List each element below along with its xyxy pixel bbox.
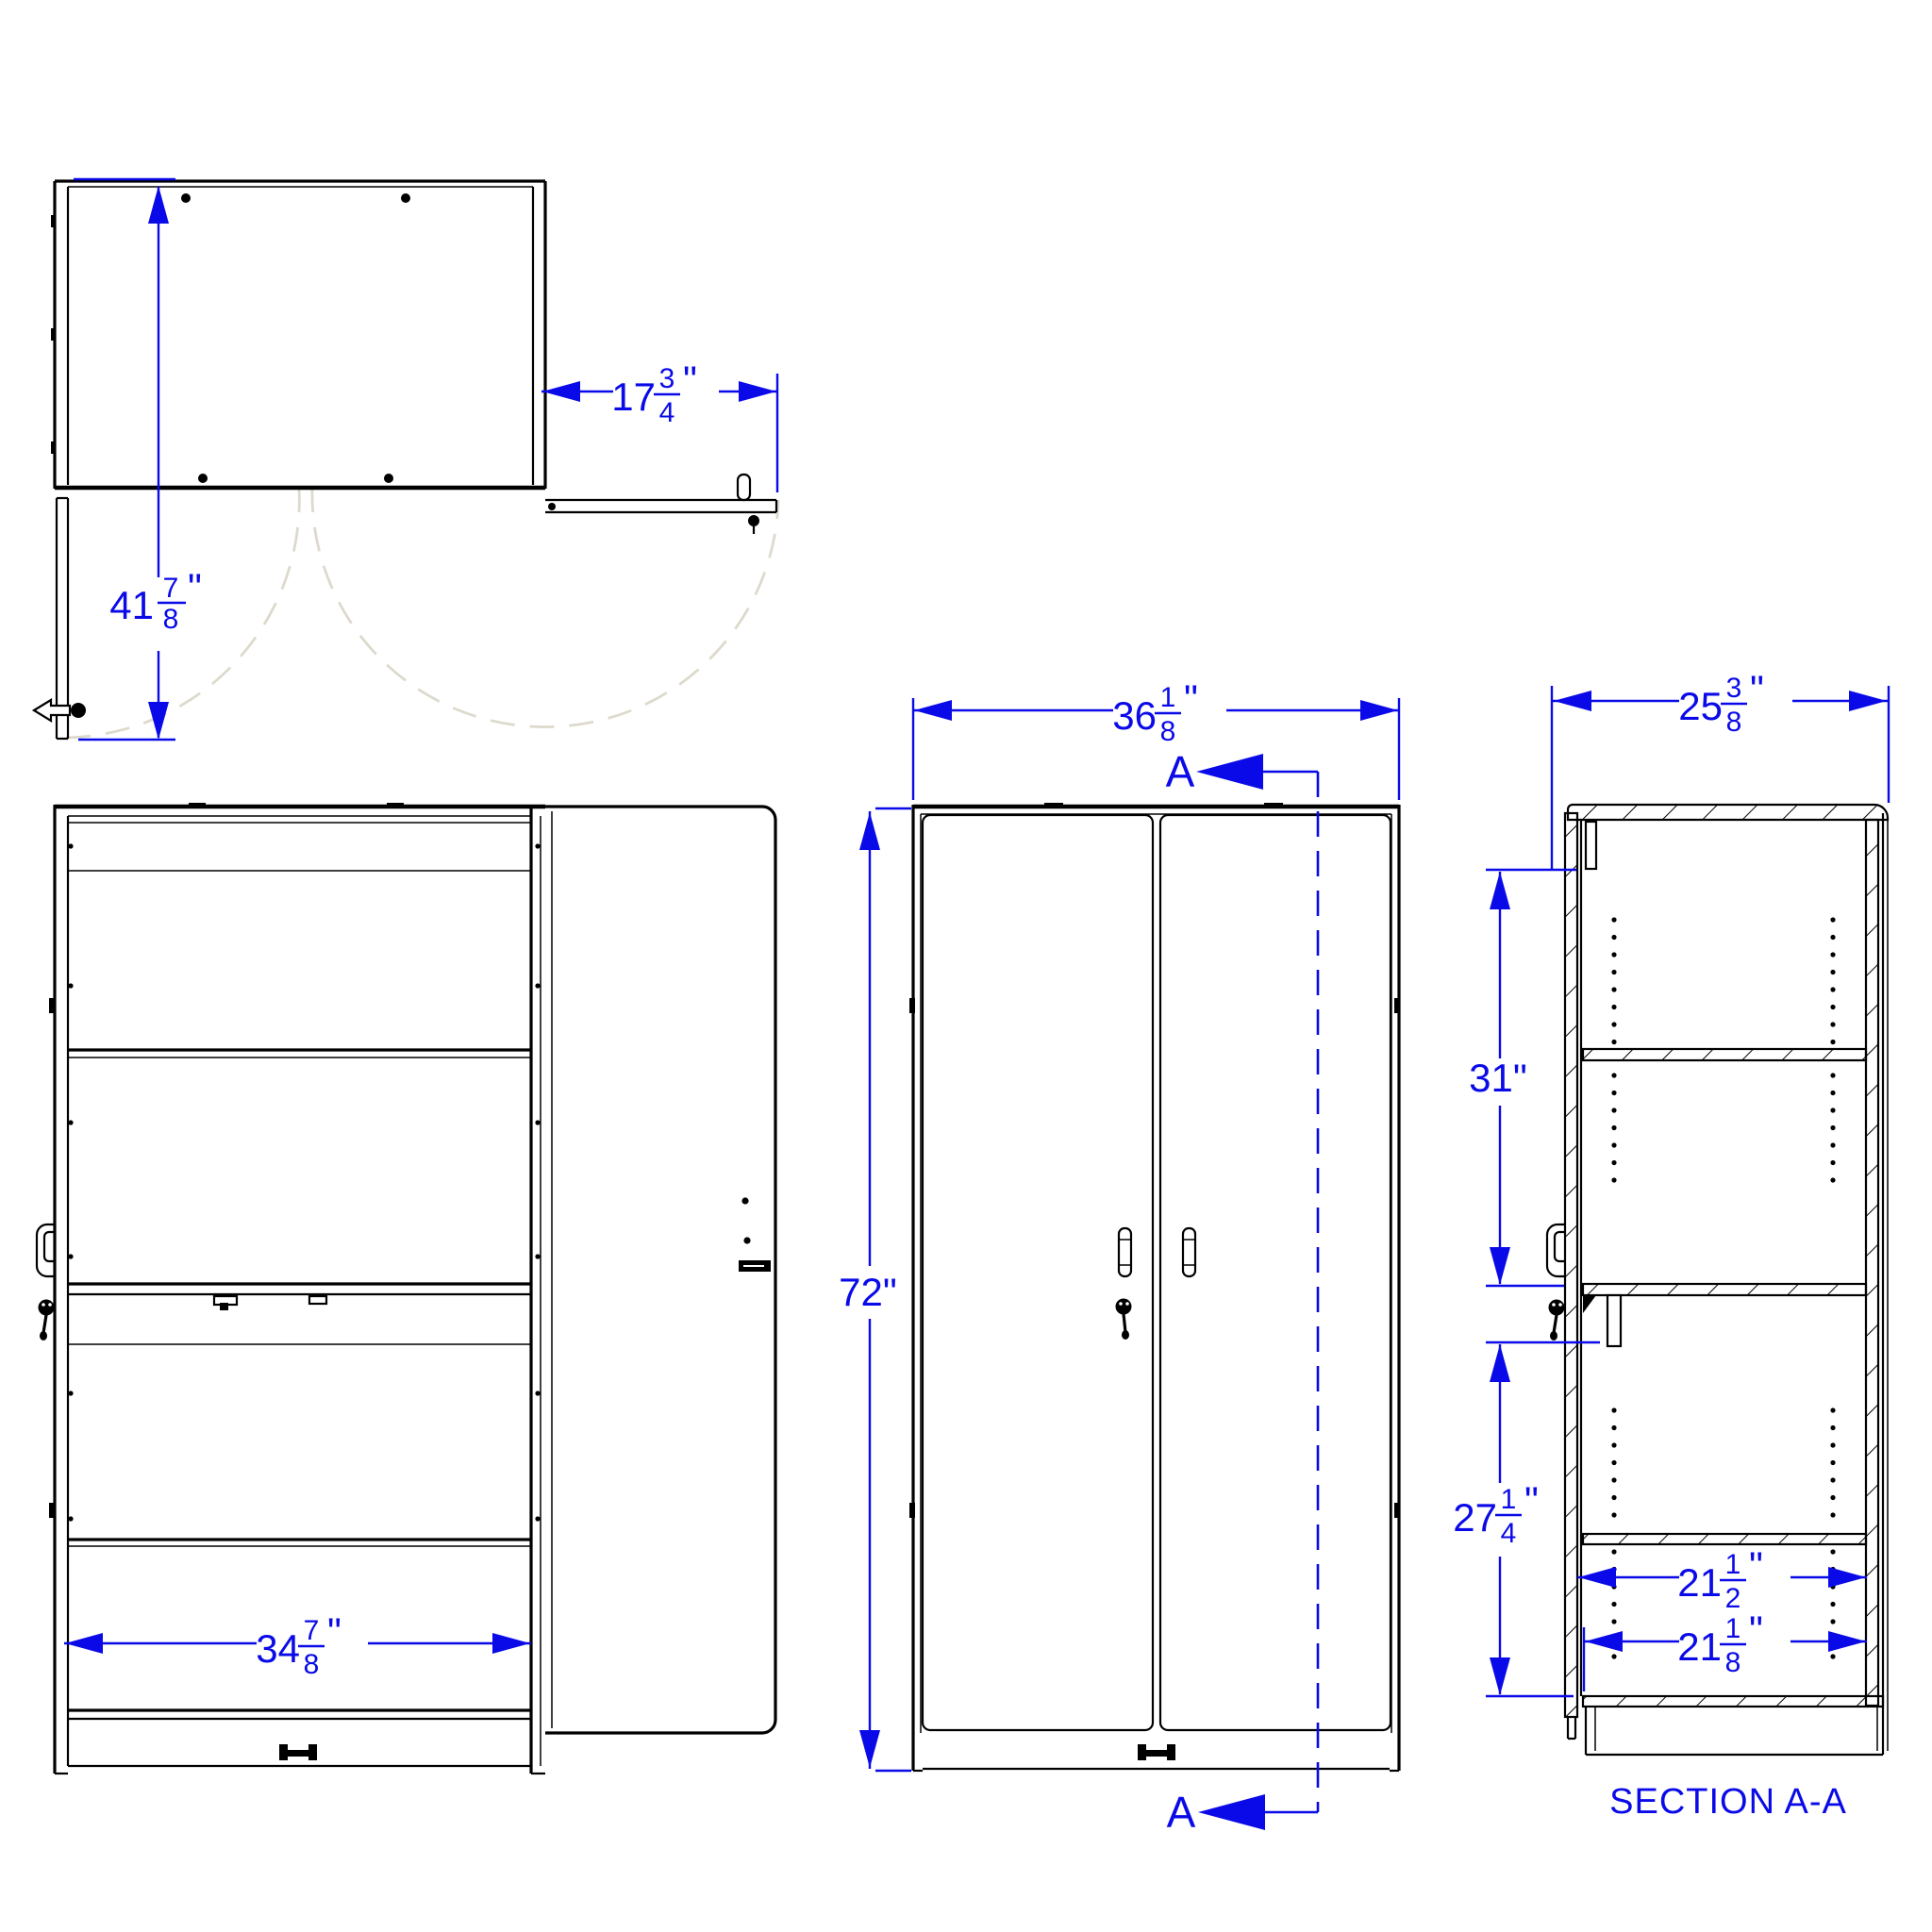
shelf-pin-holes xyxy=(68,843,540,1521)
svg-text:": " xyxy=(188,565,202,609)
base-latch-icon xyxy=(279,1744,317,1760)
dim-label: 31" xyxy=(1469,1056,1527,1100)
dim-overall-depth: 25 3 8 " xyxy=(1552,667,1889,869)
door-section xyxy=(1565,813,1577,1717)
svg-text:8: 8 xyxy=(163,604,179,635)
dim-interior-width: 34 7 8 " xyxy=(64,1609,531,1680)
dim-door-width: 17 3 4 " xyxy=(541,358,777,492)
fastener-dot xyxy=(401,193,410,203)
dim-overall-width: 36 1 8 " xyxy=(913,676,1399,800)
door-handle-icon xyxy=(37,1224,55,1276)
dim-label: 21 xyxy=(1677,1560,1722,1605)
dim-label: 72" xyxy=(839,1270,897,1314)
svg-text:": " xyxy=(1750,667,1764,711)
svg-text:3: 3 xyxy=(1726,673,1742,704)
section-marker-top: A xyxy=(1166,747,1195,796)
svg-text:4: 4 xyxy=(659,397,675,428)
door-pull-icon xyxy=(71,703,86,718)
svg-text:7: 7 xyxy=(304,1615,320,1646)
plan-right-door-open xyxy=(545,475,776,534)
section-marker-bottom: A xyxy=(1167,1788,1196,1837)
svg-text:": " xyxy=(1524,1478,1539,1523)
dim-lower-shelf-depth: 21 1 8 " xyxy=(1584,1607,1867,1691)
lock-and-key-icon xyxy=(1549,1300,1565,1341)
door-swing-arrow-icon xyxy=(34,700,70,721)
svg-text:": " xyxy=(1749,1543,1763,1588)
dim-label: 34 xyxy=(256,1626,300,1671)
right-door-handle-icon xyxy=(1183,1228,1195,1276)
section-arrow-icon xyxy=(1196,754,1263,790)
back-wall-section xyxy=(1866,820,1878,1706)
left-door-handle-icon xyxy=(1119,1228,1131,1276)
drawing-canvas: 41 7 8 " 17 3 4 " xyxy=(0,0,1932,1932)
open-door-panel xyxy=(545,807,775,1733)
shelf-latch-icon xyxy=(309,1296,326,1304)
svg-text:": " xyxy=(1749,1607,1763,1652)
door-handle-icon xyxy=(1547,1224,1565,1276)
section-arrow-icon xyxy=(1198,1794,1265,1830)
fixed-middle-shelf xyxy=(1583,1284,1866,1295)
adjustable-shelf xyxy=(1583,1049,1866,1060)
plan-view: 41 7 8 " 17 3 4 " xyxy=(34,179,778,740)
lock-and-key-icon xyxy=(1116,1299,1132,1341)
dim-plan-height: 41 7 8 " xyxy=(74,179,202,740)
fastener-dot xyxy=(198,474,208,483)
bottom-deck xyxy=(1583,1696,1883,1707)
door-lock-icon xyxy=(748,515,759,526)
svg-text:": " xyxy=(683,358,697,402)
lock-and-key-icon xyxy=(39,1300,55,1341)
dim-label: 21 xyxy=(1677,1624,1722,1669)
svg-text:8: 8 xyxy=(1726,707,1742,738)
svg-text:1: 1 xyxy=(1725,1613,1741,1644)
cad-drawing-sheet: 41 7 8 " 17 3 4 " xyxy=(0,0,1932,1932)
svg-text:": " xyxy=(1184,676,1198,721)
section-view: 25 3 8 " 31" 27 1 4 " 21 1 2 xyxy=(1453,667,1889,1822)
svg-text:1: 1 xyxy=(1725,1549,1741,1580)
front-open-view: 34 7 8 " xyxy=(37,803,775,1774)
fastener-dot xyxy=(384,474,393,483)
fastener-dot xyxy=(181,193,191,203)
dim-label: 27 xyxy=(1453,1495,1497,1540)
dim-overall-height: 72" xyxy=(839,808,911,1771)
section-cut-line: A A xyxy=(1166,747,1318,1837)
left-door-swing-arc xyxy=(62,488,299,738)
plan-left-door-open xyxy=(34,498,86,739)
svg-text:3: 3 xyxy=(659,363,675,394)
shelf-lines xyxy=(68,1050,531,1719)
svg-text:1: 1 xyxy=(1501,1484,1517,1515)
dim-label: 36 xyxy=(1112,693,1157,738)
section-view-title: SECTION A-A xyxy=(1609,1782,1847,1822)
right-door-swing-arc xyxy=(312,488,778,727)
svg-text:8: 8 xyxy=(1725,1647,1741,1678)
base-latch-icon xyxy=(1138,1744,1175,1760)
dim-label: 41 xyxy=(109,583,154,627)
svg-text:1: 1 xyxy=(1160,682,1176,713)
front-closed-view: 36 1 8 " 72" A A xyxy=(839,676,1400,1837)
svg-text:2: 2 xyxy=(1725,1583,1741,1614)
adjustable-shelf xyxy=(1583,1534,1866,1544)
door-handle-icon xyxy=(738,475,750,500)
svg-text:7: 7 xyxy=(163,573,179,604)
dim-upper-section-height: 31" xyxy=(1469,870,1576,1286)
svg-text:8: 8 xyxy=(1160,716,1176,747)
svg-text:": " xyxy=(327,1609,341,1654)
svg-text:4: 4 xyxy=(1501,1518,1517,1549)
dim-label: 17 xyxy=(611,375,656,419)
dim-upper-shelf-depth: 21 1 2 " xyxy=(1577,1543,1867,1614)
svg-text:8: 8 xyxy=(304,1649,320,1680)
dim-label: 25 xyxy=(1678,684,1723,728)
